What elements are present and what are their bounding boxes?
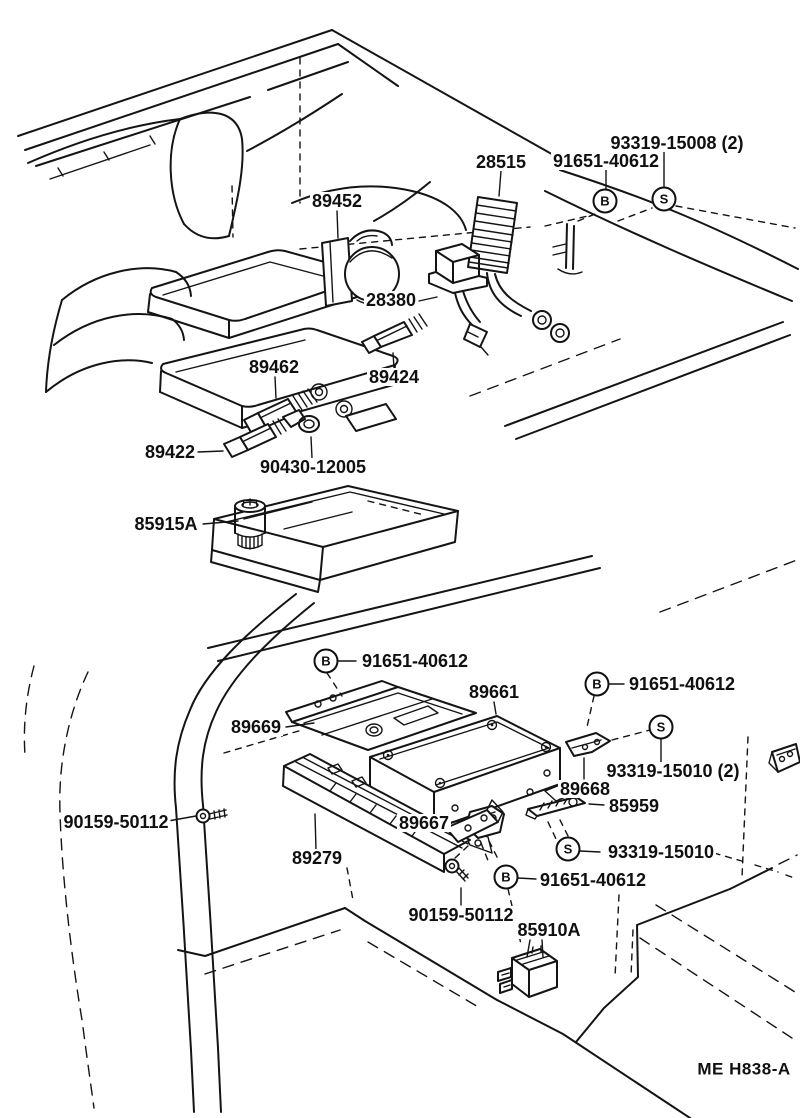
- part-label-85959: 85959: [607, 797, 661, 815]
- part-label-90159-50112-b: 90159-50112: [406, 906, 515, 924]
- part-label-89669: 89669: [229, 718, 283, 736]
- part-label-89462: 89462: [247, 358, 301, 376]
- fastener-marker-B-marker-b-1: B: [593, 189, 618, 214]
- fastener-marker-B-marker-b-2: B: [314, 649, 339, 674]
- parts-diagram-page: 93319-15008 (2)91651-4061228515894522838…: [0, 0, 800, 1118]
- fastener-marker-S-marker-s-2: S: [649, 715, 674, 740]
- part-label-89424: 89424: [367, 368, 421, 386]
- part-label-90159-50112-a: 90159-50112: [61, 813, 170, 831]
- fastener-marker-B-marker-b-4: B: [494, 865, 519, 890]
- part-label-93319-15010-2: 93319-15010 (2): [604, 762, 741, 780]
- part-label-89452: 89452: [310, 192, 364, 210]
- part-label-85915A: 85915A: [132, 515, 199, 533]
- part-label-89422: 89422: [143, 443, 197, 461]
- part-label-85910A: 85910A: [515, 921, 582, 939]
- part-label-89661: 89661: [467, 683, 521, 701]
- part-label-91651-40612-d: 91651-40612: [538, 871, 648, 889]
- part-label-89279: 89279: [290, 849, 344, 867]
- label-layer: 93319-15008 (2)91651-4061228515894522838…: [0, 0, 800, 1118]
- fastener-marker-B-marker-b-3: B: [585, 672, 610, 697]
- part-label-91651-40612-c: 91651-40612: [627, 675, 737, 693]
- part-label-28515: 28515: [474, 153, 528, 171]
- part-label-diagram-code: ME H838-A: [695, 1061, 792, 1078]
- part-label-89668: 89668: [558, 780, 612, 798]
- part-label-89667: 89667: [397, 814, 451, 832]
- part-label-28380: 28380: [364, 291, 418, 309]
- part-label-93319-15008: 93319-15008 (2): [608, 134, 745, 152]
- fastener-marker-S-marker-s-3: S: [556, 837, 581, 862]
- part-label-93319-15010: 93319-15010: [606, 843, 716, 861]
- part-label-91651-40612-b: 91651-40612: [360, 652, 470, 670]
- part-label-91651-40612-a: 91651-40612: [551, 152, 661, 170]
- part-label-90430-12005: 90430-12005: [258, 458, 368, 476]
- fastener-marker-S-marker-s-1: S: [652, 187, 677, 212]
